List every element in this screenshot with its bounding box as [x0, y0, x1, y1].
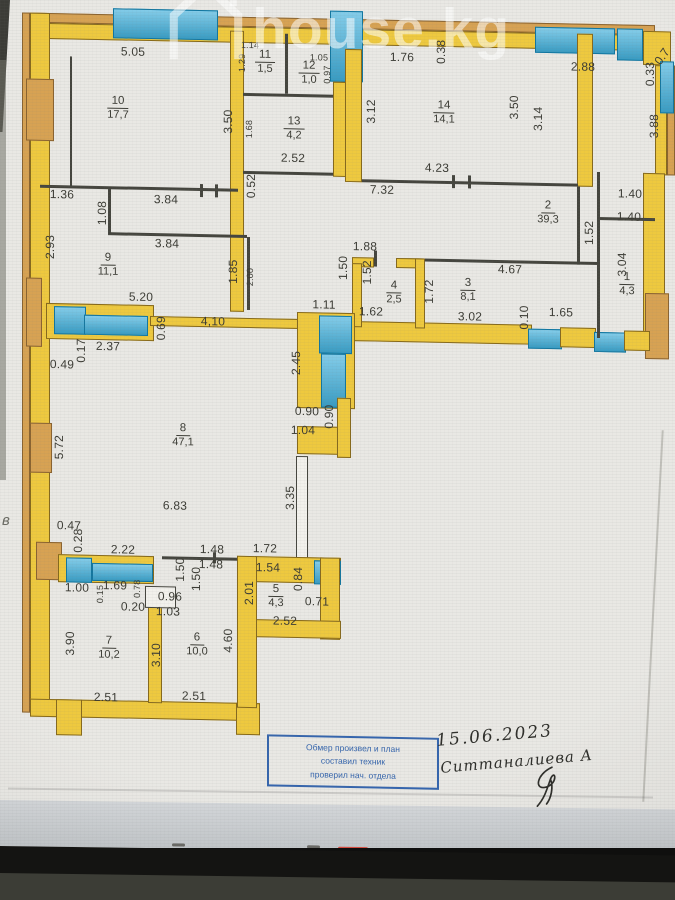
dimension-label: 1.50	[336, 256, 350, 280]
room-label-8: 847,1	[172, 418, 193, 449]
monitor-screen: Обмер произвел и план составил техник пр…	[0, 0, 675, 848]
window	[113, 8, 218, 40]
dimension-label: 2.52	[273, 613, 297, 627]
dimension-label: 0.69	[154, 316, 168, 340]
dimension-label: 1.88	[353, 239, 377, 253]
dimension-label: 2.51	[182, 689, 206, 703]
room-label-9: 911,1	[98, 247, 119, 278]
dimension-label: 5.05	[121, 44, 145, 58]
partition-wall	[285, 34, 288, 94]
dimension-label: 5.20	[129, 290, 153, 304]
room-number: 2	[541, 199, 555, 214]
dimension-label: 1.69	[103, 578, 127, 592]
dimension-tick	[452, 175, 455, 188]
room-area: 8,1	[460, 291, 475, 304]
dimension-label: 0.84	[291, 567, 305, 591]
dimension-label: 1.48	[200, 542, 224, 556]
window	[54, 306, 86, 335]
dimension-label: 1.29	[237, 54, 247, 73]
wall	[337, 398, 351, 458]
wall	[577, 34, 593, 187]
room-area: 11,1	[98, 266, 119, 279]
dimension-label: 0.78	[132, 579, 142, 598]
wall	[150, 316, 308, 329]
partition-wall	[577, 187, 580, 265]
room-number: 9	[101, 252, 115, 267]
dimension-label: 1.36	[50, 187, 74, 201]
dimension-label: 0.52	[244, 174, 258, 198]
surveyor-stamp: Обмер произвел и план составил техник пр…	[267, 734, 439, 789]
window	[660, 61, 674, 113]
bezel-edge	[0, 60, 6, 480]
open-indicator	[172, 843, 185, 846]
window	[84, 315, 148, 336]
window	[617, 28, 643, 61]
room-number: 13	[284, 115, 305, 130]
room-area: 47,1	[172, 436, 193, 449]
window	[535, 27, 615, 55]
handwritten-date: 15.06.2023	[435, 721, 554, 751]
window	[66, 557, 92, 583]
dimension-label: 4.67	[498, 262, 522, 276]
dimension-label: 0.97	[322, 65, 332, 84]
dimension-label: 1.72	[253, 541, 277, 555]
dimension-label: 1.08	[95, 201, 109, 225]
dimension-label: 2.00	[245, 268, 255, 287]
dimension-label: 1.52	[582, 221, 596, 245]
room-number: 12	[299, 59, 320, 74]
brick-wall	[26, 278, 42, 347]
handwritten-name: Ситтаналиева А	[439, 746, 593, 777]
floor-plan: Обмер произвел и план составил техник пр…	[0, 0, 675, 814]
dimension-label: 3.50	[507, 95, 521, 119]
dimension-label: 1.50	[173, 557, 187, 581]
dimension-label: 1.00	[65, 580, 89, 594]
dimension-label: 4,10	[201, 314, 225, 328]
dimension-label: 6.83	[163, 498, 187, 512]
partition-wall	[243, 93, 341, 97]
dimension-label: 0.20	[121, 599, 145, 613]
dimension-label: 0.17	[74, 338, 88, 362]
room-area: 10,2	[98, 649, 119, 662]
dimension-label: 3.10	[149, 643, 163, 667]
brick-wall	[26, 79, 54, 142]
room-area: 2,5	[386, 294, 401, 307]
dimension-label: 2.93	[43, 235, 57, 259]
dimension-label: 1.40	[617, 209, 641, 223]
room-label-2: 239,3	[537, 195, 558, 226]
room-number: 14	[434, 99, 455, 114]
dimension-label: 0.38	[434, 40, 448, 64]
open-indicator-chat	[338, 847, 368, 848]
room-area: 1,0	[299, 74, 320, 87]
dimension-tick	[468, 175, 471, 188]
room-area: 4,3	[619, 285, 634, 298]
room-label-6: 610,0	[186, 627, 207, 658]
room-label-3: 38,1	[460, 273, 475, 304]
dimension-tick	[215, 184, 218, 197]
dimension-label: 3.12	[364, 99, 378, 123]
room-area: 1,5	[255, 63, 275, 76]
stamp-line: проверил нач. отдела	[269, 767, 437, 784]
room-number: 6	[190, 631, 204, 646]
room-label-14: 1414,1	[433, 95, 454, 126]
room-number: 3	[461, 277, 475, 292]
dimension-label: 1.54	[256, 560, 280, 574]
dimension-label: 0.96	[158, 589, 182, 603]
room-area: 14,1	[433, 114, 454, 127]
wall	[624, 331, 650, 352]
signature	[520, 761, 571, 808]
margin-scribble: в	[2, 512, 10, 529]
taskbar: O 17 E1 zm	[0, 800, 675, 848]
room-label-12: 121,0	[299, 55, 320, 86]
room-area: 10,0	[186, 646, 207, 659]
room-number: 11	[255, 49, 275, 64]
dimension-label: 3.50	[221, 109, 235, 133]
room-area: 39,3	[537, 214, 558, 227]
dimension-label: 2.37	[96, 339, 120, 353]
partition-wall	[597, 172, 600, 338]
dimension-label: 1.62	[359, 304, 383, 318]
dimension-label: 3.84	[154, 192, 178, 206]
room-label-13: 134,2	[284, 111, 305, 142]
dimension-label: 0.33	[643, 62, 657, 86]
dimension-label: 1.65	[549, 305, 573, 319]
dimension-label: 0.10	[517, 305, 531, 329]
dimension-label: 0.49	[50, 357, 74, 371]
dimension-label: 1.03	[156, 604, 180, 618]
dimension-label: 3.02	[458, 309, 482, 323]
room-number: 7	[102, 635, 116, 650]
room-number: 1	[620, 271, 634, 286]
room-label-11: 111,5	[255, 45, 275, 76]
dimension-label: 1.52	[360, 260, 374, 284]
dimension-label: 1.40	[618, 186, 642, 200]
dimension-label: 3.14	[531, 107, 545, 131]
room-area: 4,2	[284, 130, 305, 143]
dimension-tick	[200, 184, 203, 197]
dimension-label: 2.88	[571, 59, 595, 73]
dimension-label: 0.71	[305, 594, 329, 608]
dimension-label: 1.04	[291, 423, 315, 437]
dimension-label: 1.11	[312, 297, 335, 311]
dimension-label: 3.84	[155, 236, 179, 250]
room-label-4: 42,5	[386, 275, 401, 306]
open-indicator	[307, 845, 320, 848]
dimension-label: 3.90	[63, 631, 77, 655]
dimension-label: 2.22	[111, 542, 135, 556]
dimension-label: 2.51	[94, 690, 118, 704]
wall	[56, 699, 82, 736]
brick-wall	[30, 423, 52, 473]
partition-wall	[70, 56, 72, 187]
dimension-label: 3.88	[647, 114, 661, 138]
dimension-label: 1.72	[422, 279, 436, 303]
dimension-label: 4.60	[221, 628, 235, 652]
dimension-label: 2.01	[242, 581, 256, 605]
wall	[560, 327, 596, 348]
room-number: 8	[176, 422, 190, 437]
dimension-label: 1.76	[390, 50, 414, 64]
window	[528, 329, 562, 350]
room-number: 4	[387, 279, 401, 294]
dimension-label: 0.28	[71, 528, 85, 552]
dimension-label: 1.68	[244, 120, 254, 139]
dimension-label: 1.50	[189, 567, 203, 591]
dimension-label: 4.23	[425, 161, 449, 175]
wall	[352, 321, 532, 345]
room-number: 5	[269, 583, 283, 598]
dimension-label: 2.45	[289, 351, 303, 375]
room-label-10: 1017,7	[107, 91, 128, 122]
room-area: 17,7	[107, 109, 128, 122]
dimension-label: 1.85	[226, 259, 240, 283]
dimension-label: 0.90	[322, 404, 336, 428]
window	[319, 315, 352, 354]
dimension-label: 2.52	[281, 151, 305, 165]
room-label-7: 710,2	[98, 630, 119, 661]
dimension-label: 3.35	[283, 486, 297, 510]
wall	[345, 49, 362, 182]
room-label-1: 14,3	[619, 267, 634, 298]
dimension-label: 5.72	[52, 435, 66, 459]
dimension-label: 7.32	[370, 182, 394, 196]
room-area: 4,3	[268, 597, 283, 610]
room-number: 10	[108, 95, 129, 110]
double-wall	[296, 456, 308, 560]
wall	[237, 556, 257, 708]
dimension-label: 0.90	[295, 404, 319, 418]
room-label-5: 54,3	[268, 579, 283, 610]
photographed-monitor: Обмер произвел и план составил техник пр…	[0, 0, 675, 900]
